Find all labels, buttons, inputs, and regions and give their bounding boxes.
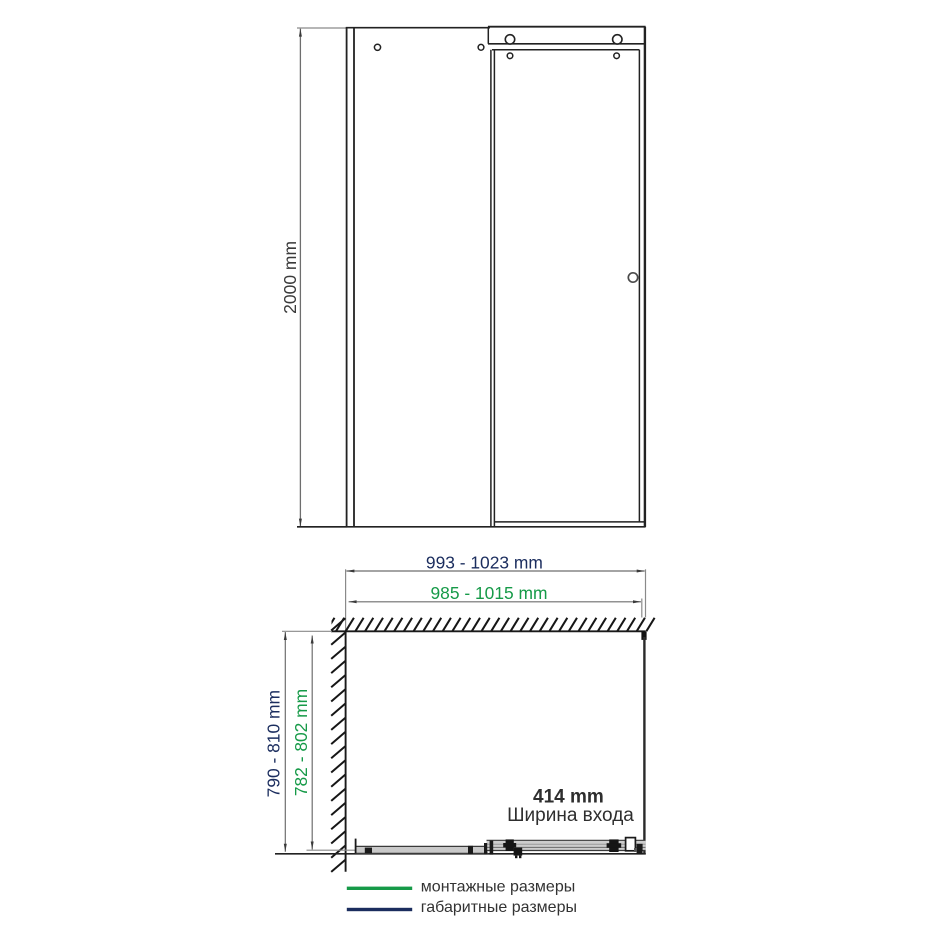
svg-text:782 - 802 mm: 782 - 802 mm: [291, 689, 311, 796]
svg-text:Ширина входа: Ширина входа: [507, 805, 634, 826]
svg-text:790 - 810 mm: 790 - 810 mm: [264, 690, 284, 797]
svg-text:985 - 1015 mm: 985 - 1015 mm: [431, 583, 548, 603]
svg-text:габаритные размеры: габаритные размеры: [421, 899, 577, 916]
svg-text:993 - 1023 mm: 993 - 1023 mm: [426, 552, 543, 572]
svg-text:2000 mm: 2000 mm: [280, 241, 300, 314]
svg-text:монтажные размеры: монтажные размеры: [421, 878, 575, 895]
